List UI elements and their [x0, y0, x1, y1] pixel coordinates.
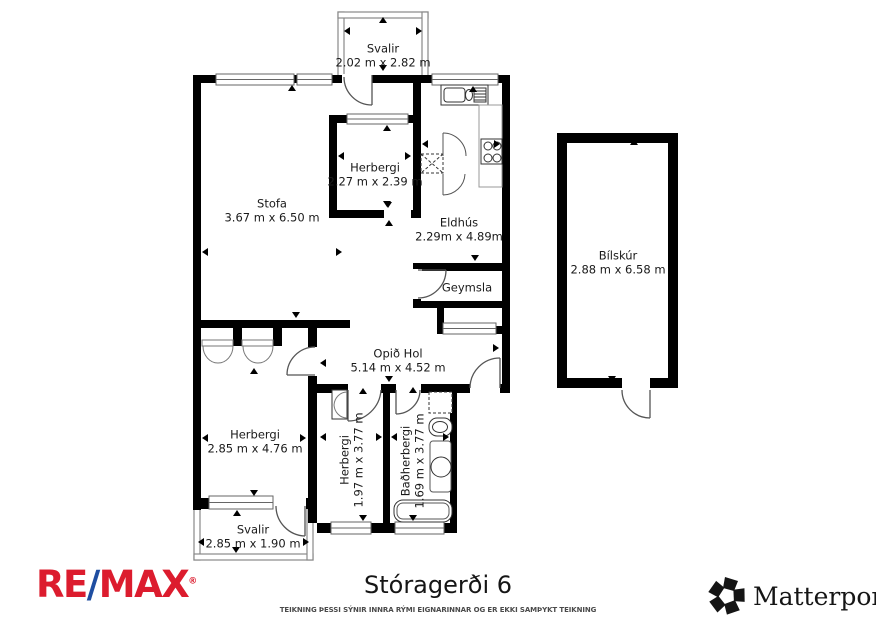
room-label-opid-hol: Opið Hol 5.14 m x 4.52 m	[350, 348, 445, 375]
room-name: Baðherbergi	[400, 413, 414, 508]
floorplan-page: Svalir 2.02 m x 2.82 m Stofa 3.67 m x 6.…	[0, 0, 876, 620]
window	[209, 496, 273, 509]
window	[443, 323, 496, 334]
room-label-herbergi-small: Herbergi 2.27 m x 2.39 m	[327, 162, 422, 189]
room-dims: 1.69 m x 3.77 m	[413, 413, 427, 508]
garage-door	[622, 390, 650, 418]
matterport-pinwheel-icon	[708, 577, 746, 615]
dish-rack	[474, 88, 486, 102]
floorplan-canvas	[0, 0, 876, 620]
room-label-svalir-bottom: Svalir 2.85 m x 1.90 m	[205, 524, 300, 551]
window	[331, 522, 371, 534]
cabinet-doors	[443, 133, 466, 195]
room-name: Opið Hol	[350, 348, 445, 362]
room-dims: 1.97 m x 3.77 m	[352, 412, 366, 507]
matterport-wordmark: Matterport	[753, 582, 876, 611]
matterport-logo: Matterport®	[708, 577, 876, 615]
window	[432, 74, 498, 85]
room-dims: 2.29m x 4.89m	[415, 230, 503, 244]
room-label-stofa: Stofa 3.67 m x 6.50 m	[224, 198, 319, 225]
stove	[481, 139, 502, 164]
window	[297, 74, 332, 85]
room-name: Stofa	[224, 198, 319, 212]
room-name: Eldhús	[415, 217, 503, 231]
room-name: Svalir	[335, 43, 430, 57]
room-label-svalir-top: Svalir 2.02 m x 2.82 m	[335, 43, 430, 70]
room-name: Herbergi	[327, 162, 422, 176]
washing-machine-dashed	[429, 392, 452, 413]
room-name: Herbergi	[207, 429, 302, 443]
room-dims: 2.27 m x 2.39 m	[327, 175, 422, 189]
room-dims: 2.85 m x 4.76 m	[207, 442, 302, 456]
room-label-herbergi-left: Herbergi 2.85 m x 4.76 m	[207, 429, 302, 456]
room-name: Bílskúr	[570, 250, 665, 264]
bathroom-sink	[429, 418, 452, 436]
window	[347, 114, 408, 124]
room-dims: 2.02 m x 2.82 m	[335, 56, 430, 70]
room-label-badherbergi: Baðherbergi 1.69 m x 3.77 m	[400, 413, 427, 508]
room-dims: 5.14 m x 4.52 m	[350, 361, 445, 375]
refrigerator-dashed	[421, 154, 443, 173]
room-name: Svalir	[205, 524, 300, 538]
room-label-bilskur: Bílskúr 2.88 m x 6.58 m	[570, 250, 665, 277]
kitchen-fixtures	[421, 85, 502, 195]
room-label-geymsla: Geymsla	[442, 281, 492, 295]
window	[216, 74, 294, 85]
room-label-herbergi-mid: Herbergi 1.97 m x 3.77 m	[339, 412, 366, 507]
window	[395, 522, 444, 534]
room-dims: 2.85 m x 1.90 m	[205, 537, 300, 551]
room-dims: 3.67 m x 6.50 m	[224, 211, 319, 225]
room-label-eldhus: Eldhús 2.29m x 4.89m	[415, 217, 503, 244]
room-dims: 2.88 m x 6.58 m	[570, 263, 665, 277]
kitchen-sink	[444, 88, 465, 102]
room-name: Geymsla	[442, 281, 492, 295]
toilet	[430, 441, 451, 492]
room-name: Herbergi	[339, 412, 353, 507]
